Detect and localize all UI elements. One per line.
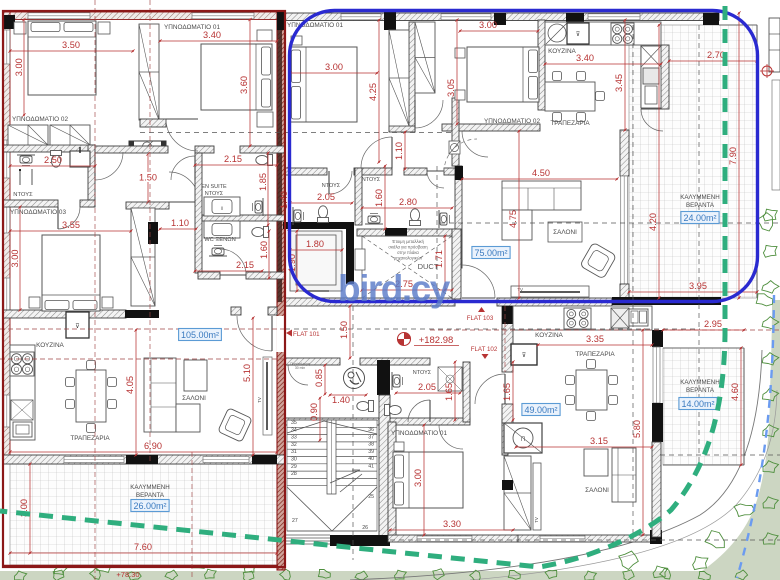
svg-text:1.50: 1.50: [139, 173, 157, 183]
svg-text:27: 27: [292, 518, 298, 524]
svg-text:EN SUITE: EN SUITE: [201, 184, 227, 190]
svg-text:3.15: 3.15: [590, 436, 608, 446]
svg-text:3.00: 3.00: [10, 250, 20, 268]
svg-text:35: 35: [291, 420, 297, 426]
svg-text:4.60: 4.60: [730, 383, 740, 401]
svg-text:49.00m²: 49.00m²: [524, 405, 557, 415]
svg-text:41: 41: [368, 464, 374, 470]
svg-text:1.40: 1.40: [332, 395, 350, 405]
svg-text:4.50: 4.50: [532, 168, 550, 178]
svg-text:ΥΠΝΟΔΩΜΑΤΙΟ 02: ΥΠΝΟΔΩΜΑΤΙΟ 02: [484, 118, 540, 125]
svg-text:bird.cy: bird.cy: [338, 268, 451, 309]
svg-text:33: 33: [291, 435, 297, 441]
svg-text:ΥΠΝΟΔΩΜΑΤΙΟ 01: ΥΠΝΟΔΩΜΑΤΙΟ 01: [287, 22, 343, 29]
svg-text:2.70: 2.70: [707, 50, 725, 60]
svg-text:3.00: 3.00: [14, 58, 24, 76]
svg-text:ΒΕΡΑΝΤΑ: ΒΕΡΑΝΤΑ: [686, 202, 715, 209]
svg-text:3.40: 3.40: [576, 53, 594, 63]
svg-text:ΝΤΟΥΣ: ΝΤΟΥΣ: [205, 191, 224, 197]
svg-text:0.85: 0.85: [314, 369, 324, 387]
svg-text:30: 30: [291, 457, 297, 463]
svg-text:1.71: 1.71: [434, 250, 444, 268]
svg-text:6.90: 6.90: [144, 441, 162, 451]
svg-text:2.15: 2.15: [236, 260, 254, 270]
svg-text:2.15: 2.15: [224, 154, 242, 164]
svg-text:ΚΟΥΖΙΝΑ: ΚΟΥΖΙΝΑ: [548, 48, 576, 55]
svg-text:1.85: 1.85: [258, 173, 268, 191]
svg-text:5.80: 5.80: [632, 420, 642, 438]
svg-text:2.05: 2.05: [317, 192, 335, 202]
svg-text:ΚΑΛΥΜΜΕΝΗ: ΚΑΛΥΜΜΕΝΗ: [680, 194, 719, 201]
svg-text:3.00: 3.00: [325, 62, 343, 72]
svg-text:1.80: 1.80: [306, 239, 324, 249]
svg-text:3.60: 3.60: [239, 76, 249, 94]
svg-text:37: 37: [368, 434, 374, 440]
svg-text:TV: TV: [534, 517, 539, 523]
svg-text:TV: TV: [257, 397, 262, 403]
svg-text:ΣΑΛΟΝΙ: ΣΑΛΟΝΙ: [182, 395, 206, 402]
svg-text:7.90: 7.90: [728, 147, 738, 165]
svg-text:2.80: 2.80: [399, 197, 417, 207]
svg-text:34: 34: [291, 427, 297, 433]
svg-text:3.00: 3.00: [413, 469, 423, 487]
svg-text:σκάλα για πρόσβαση: σκάλα για πρόσβαση: [388, 245, 428, 250]
svg-text:75.00m²: 75.00m²: [474, 248, 507, 258]
svg-text:2.95: 2.95: [704, 319, 722, 329]
svg-text:38: 38: [368, 442, 374, 448]
svg-text:ΚΟΥΖΙΝΑ: ΚΟΥΖΙΝΑ: [535, 332, 563, 339]
svg-text:1.65: 1.65: [444, 383, 454, 401]
svg-text:4.75: 4.75: [508, 210, 518, 228]
svg-text:Έτοιμη μεταλλική: Έτοιμη μεταλλική: [391, 239, 425, 244]
svg-text:14.00m²: 14.00m²: [681, 399, 714, 409]
svg-text:ΝΤΟΥΣ: ΝΤΟΥΣ: [362, 177, 381, 183]
svg-text:3.35: 3.35: [586, 334, 604, 344]
svg-text:ΥΠΝΟΔΩΜΑΤΙΟ 01: ΥΠΝΟΔΩΜΑΤΙΟ 01: [164, 24, 220, 31]
svg-text:ΥΠΝΟΔΩΜΑΤΙΟ 01: ΥΠΝΟΔΩΜΑΤΙΟ 01: [391, 430, 447, 437]
svg-text:3.30: 3.30: [443, 519, 461, 529]
svg-text:+78.30: +78.30: [116, 570, 139, 579]
svg-text:ΚΑΛΥΜΜΕΝΗ: ΚΑΛΥΜΜΕΝΗ: [680, 379, 719, 386]
svg-text:1.10: 1.10: [171, 218, 189, 228]
svg-text:ΥΠΝΟΔΩΜΑΤΙΟ 03: ΥΠΝΟΔΩΜΑΤΙΟ 03: [10, 209, 66, 216]
svg-text:μηχανολογικών: μηχανολογικών: [394, 256, 422, 261]
svg-text:⊽: ⊽: [522, 352, 526, 359]
svg-text:στην πλάκα: στην πλάκα: [397, 250, 419, 255]
svg-text:TV: TV: [517, 287, 523, 292]
svg-text:FLAT 102: FLAT 102: [471, 346, 498, 353]
svg-text:32: 32: [291, 442, 297, 448]
svg-text:+182.98: +182.98: [419, 335, 454, 346]
svg-text:29: 29: [291, 464, 297, 470]
svg-text:26: 26: [362, 525, 368, 531]
svg-text:ΒΕΡΑΝΤΑ: ΒΕΡΑΝΤΑ: [136, 492, 165, 499]
svg-text:WC ΞΕΝΩΝ: WC ΞΕΝΩΝ: [204, 237, 236, 243]
svg-text:1.10: 1.10: [394, 142, 404, 160]
svg-text:1.60: 1.60: [374, 189, 384, 207]
svg-text:1.65: 1.65: [502, 383, 512, 401]
svg-text:3.50: 3.50: [62, 40, 80, 50]
svg-text:ΝΤΟΥΣ: ΝΤΟΥΣ: [13, 192, 33, 198]
svg-text:4.20: 4.20: [648, 213, 658, 231]
svg-text:ΤΡΑΠΕΖΑΡΙΑ: ΤΡΑΠΕΖΑΡΙΑ: [575, 351, 615, 358]
svg-text:3.55: 3.55: [62, 220, 80, 230]
svg-text:ΚΟΥΖΙΝΑ: ΚΟΥΖΙΝΑ: [36, 342, 64, 349]
svg-text:3.05: 3.05: [446, 79, 456, 97]
svg-text:26.00m²: 26.00m²: [133, 501, 166, 511]
svg-text:FLAT 101: FLAT 101: [293, 331, 320, 338]
svg-text:31: 31: [291, 449, 297, 455]
svg-text:36: 36: [368, 427, 374, 433]
svg-text:25: 25: [368, 494, 374, 500]
svg-text:ΚΑΛΥΜΜΕΝΗ: ΚΑΛΥΜΜΕΝΗ: [130, 484, 169, 491]
svg-text:1.60: 1.60: [259, 241, 269, 259]
svg-text:3.45: 3.45: [614, 74, 624, 92]
svg-text:39: 39: [368, 449, 374, 455]
svg-text:ΝΤΟΥΣ: ΝΤΟΥΣ: [413, 370, 432, 376]
svg-text:1.50: 1.50: [339, 321, 349, 339]
svg-text:3.00: 3.00: [479, 20, 497, 30]
svg-text:3.40: 3.40: [203, 30, 221, 40]
svg-text:ΥΠΝΟΔΩΜΑΤΙΟ 02: ΥΠΝΟΔΩΜΑΤΙΟ 02: [12, 116, 68, 123]
svg-text:ΝΤΟΥΣ: ΝΤΟΥΣ: [322, 183, 341, 189]
svg-text:4.25: 4.25: [368, 83, 378, 101]
svg-text:105.00m²: 105.00m²: [181, 330, 219, 340]
svg-text:ΣΑΛΟΝΙ: ΣΑΛΟΝΙ: [553, 229, 577, 236]
svg-text:FLAT 103: FLAT 103: [467, 315, 494, 322]
svg-text:28: 28: [291, 471, 297, 477]
svg-text:ΣΑΛΟΝΙ: ΣΑΛΟΝΙ: [585, 487, 609, 494]
svg-text:24.00m²: 24.00m²: [683, 213, 716, 223]
svg-text:⊽: ⊽: [576, 31, 580, 38]
svg-text:30 min: 30 min: [295, 366, 305, 370]
svg-text:2.05: 2.05: [418, 382, 436, 392]
svg-text:2.50: 2.50: [44, 155, 62, 165]
svg-text:7.60: 7.60: [134, 542, 152, 552]
svg-text:0.90: 0.90: [309, 403, 319, 421]
svg-text:ΤΡΑΠΕΖΑΡΙΑ: ΤΡΑΠΕΖΑΡΙΑ: [550, 120, 590, 127]
svg-text:40: 40: [368, 456, 374, 462]
svg-text:ΤΡΑΠΕΖΑΡΙΑ: ΤΡΑΠΕΖΑΡΙΑ: [70, 435, 110, 442]
svg-text:3.95: 3.95: [689, 281, 707, 291]
svg-text:4.05: 4.05: [125, 376, 135, 394]
svg-text:5.10: 5.10: [242, 364, 252, 382]
svg-text:ΒΕΡΑΝΤΑ: ΒΕΡΑΝΤΑ: [686, 387, 715, 394]
